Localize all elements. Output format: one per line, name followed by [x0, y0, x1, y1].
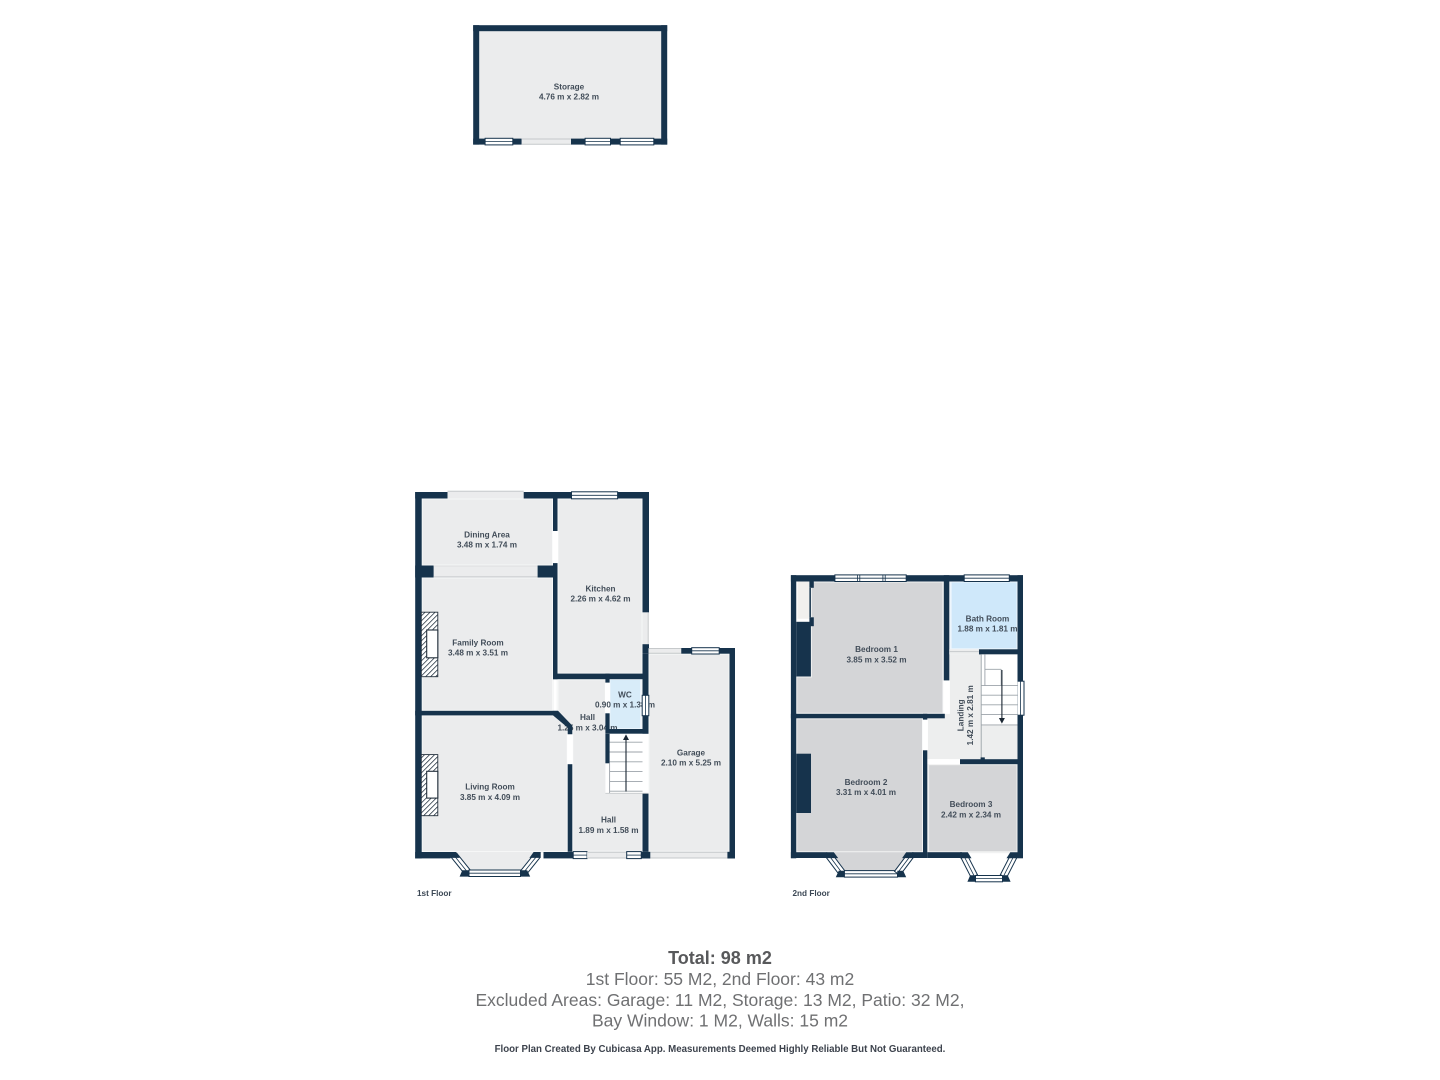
svg-text:Bedroom 3: Bedroom 3 [950, 800, 993, 809]
svg-text:2.26 m x 4.62 m: 2.26 m x 4.62 m [570, 595, 630, 604]
svg-text:2nd Floor: 2nd Floor [793, 889, 831, 898]
svg-text:Storage: Storage [554, 83, 585, 92]
svg-text:Bedroom 2: Bedroom 2 [845, 778, 888, 787]
svg-text:3.48 m x 3.51 m: 3.48 m x 3.51 m [448, 649, 508, 658]
svg-text:Hall: Hall [580, 713, 595, 722]
svg-text:Dining Area: Dining Area [464, 530, 510, 539]
svg-text:3.48 m x 1.74 m: 3.48 m x 1.74 m [457, 540, 517, 549]
svg-text:3.85 m x 4.09 m: 3.85 m x 4.09 m [460, 793, 520, 802]
svg-text:1st Floor: 1st Floor [417, 889, 452, 898]
svg-text:Hall: Hall [601, 816, 616, 825]
svg-text:Floor Plan Created By Cubicasa: Floor Plan Created By Cubicasa App. Meas… [495, 1044, 946, 1055]
svg-text:Family Room: Family Room [452, 639, 503, 648]
svg-text:Bay Window: 1 M2, Walls: 15 m2: Bay Window: 1 M2, Walls: 15 m2 [592, 1011, 848, 1031]
svg-text:2.42 m x 2.34 m: 2.42 m x 2.34 m [941, 811, 1001, 820]
svg-text:Total: 98 m2: Total: 98 m2 [668, 948, 772, 968]
svg-text:Bath Room: Bath Room [966, 615, 1010, 624]
svg-text:Excluded Areas: Garage: 11 M2,: Excluded Areas: Garage: 11 M2, Storage: … [476, 990, 965, 1010]
svg-text:Living Room: Living Room [465, 783, 515, 792]
svg-text:1st Floor: 55 M2, 2nd Floor: 4: 1st Floor: 55 M2, 2nd Floor: 43 m2 [586, 969, 854, 989]
svg-text:Landing: Landing [957, 699, 966, 731]
svg-text:1.88 m x 1.81 m: 1.88 m x 1.81 m [957, 624, 1017, 633]
svg-text:WC: WC [618, 691, 632, 700]
svg-text:3.85 m x 3.52 m: 3.85 m x 3.52 m [846, 656, 906, 665]
svg-text:4.76 m x 2.82 m: 4.76 m x 2.82 m [539, 93, 599, 102]
svg-text:Kitchen: Kitchen [585, 585, 615, 594]
svg-text:Bedroom 1: Bedroom 1 [855, 645, 898, 654]
svg-text:1.89 m x 1.58 m: 1.89 m x 1.58 m [578, 826, 638, 835]
svg-text:Garage: Garage [677, 748, 706, 757]
svg-text:2.10 m x 5.25 m: 2.10 m x 5.25 m [661, 759, 721, 768]
svg-text:1.42 m x 2.81 m: 1.42 m x 2.81 m [966, 685, 975, 745]
svg-text:3.31 m x 4.01 m: 3.31 m x 4.01 m [836, 788, 896, 797]
